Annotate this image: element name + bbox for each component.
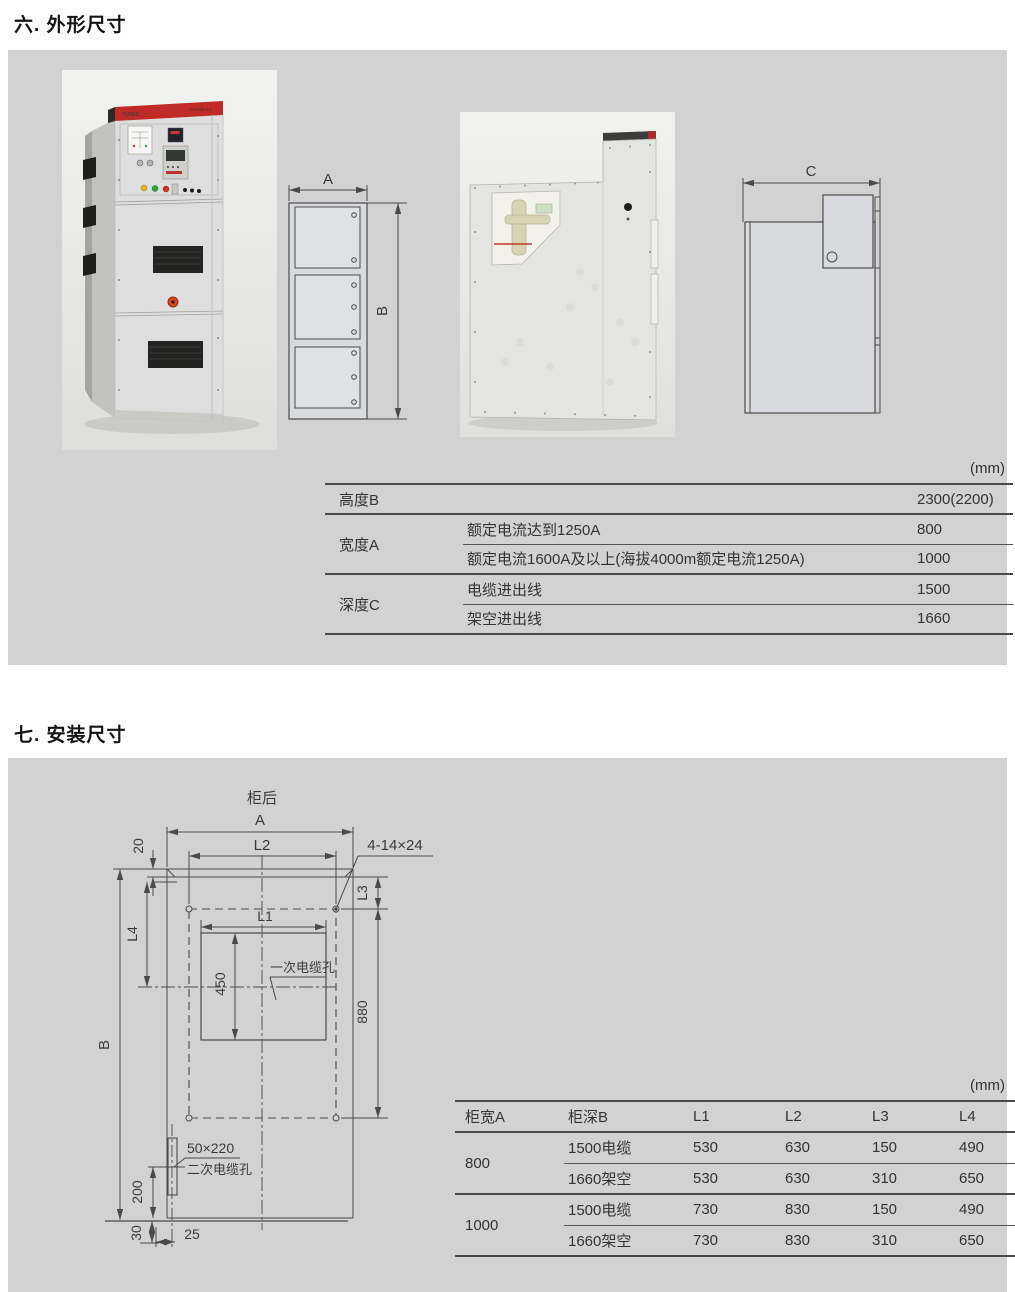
lamp-red [163, 186, 169, 192]
cell-label: 宽度A [325, 514, 463, 574]
meter-display [171, 131, 180, 134]
mimic-dot-green [145, 145, 147, 147]
holes-label: 4-14×24 [367, 837, 422, 854]
dim-label-A: A [323, 171, 333, 188]
door-panel [295, 347, 360, 408]
mounting-hole [186, 1115, 192, 1121]
push-button [183, 188, 187, 192]
mounting-hole [186, 906, 192, 912]
cell-width: 800 [455, 1132, 564, 1194]
dim-label-L1: L1 [257, 908, 273, 924]
relay-key [172, 166, 174, 168]
cell-depth: 1500电缆 [564, 1194, 687, 1225]
relay-key [167, 166, 169, 168]
cell-l2: 630 [779, 1163, 866, 1194]
round-indicator-core [171, 300, 174, 303]
table-header-row: 柜宽A 柜深B L1 L2 L3 L4 [455, 1101, 1015, 1132]
cell-spacer [463, 484, 913, 514]
installation-drawing: 柜后 A L2 20 B L4 4-14×24 L3 880 L1 450 一次… [95, 772, 440, 1287]
insulator-bar [505, 215, 550, 224]
cell-l2: 830 [779, 1194, 866, 1225]
raised-box [823, 195, 873, 268]
cell-width: 1000 [455, 1194, 564, 1256]
primary-hole-label: 一次电缆孔 [270, 960, 335, 975]
header-l4: L4 [953, 1101, 1015, 1132]
digital-meter [168, 128, 183, 142]
cell-depth: 1660架空 [564, 1163, 687, 1194]
section7-title: 七. 安装尺寸 [14, 720, 127, 747]
cell-l4: 490 [953, 1132, 1015, 1163]
cell-l3: 310 [866, 1163, 953, 1194]
cell-value: 1660 [913, 604, 1013, 634]
dim-label-A: A [255, 812, 265, 829]
dim-label-B: B [96, 1040, 113, 1050]
door-panel [295, 207, 360, 268]
dimension-table: 高度B 2300(2200) 宽度A 额定电流达到1250A 800 额定电流1… [325, 483, 1013, 635]
middle-vent [153, 246, 203, 273]
dim-label-200: 200 [129, 1180, 145, 1204]
window-component [536, 204, 552, 213]
catalog-page: 六. 外形尺寸 YUNER KYN28-12 [0, 0, 1015, 1292]
insulator-arm [512, 200, 526, 255]
cell-l1: 530 [687, 1132, 779, 1163]
cell-l4: 650 [953, 1163, 1015, 1194]
control-switch [147, 160, 153, 166]
cell-l1: 530 [687, 1163, 779, 1194]
mounting-hole [333, 1115, 339, 1121]
dim-label-L2: L2 [254, 837, 271, 854]
installation-table: 柜宽A 柜深B L1 L2 L3 L4 800 1500电缆 530 630 1… [455, 1100, 1015, 1257]
panel-hole [624, 203, 632, 211]
cell-l2: 630 [779, 1132, 866, 1163]
cell-condition: 额定电流达到1250A [463, 514, 913, 544]
side-view-drawing: C [723, 153, 913, 425]
cell-l1: 730 [687, 1225, 779, 1256]
cell-value: 2300(2200) [913, 484, 1013, 514]
cell-value: 1500 [913, 574, 1013, 604]
cell-value: 800 [913, 514, 1013, 544]
section6-title: 六. 外形尺寸 [14, 10, 127, 37]
control-switch [137, 160, 143, 166]
secondary-hole-leader [174, 1158, 185, 1167]
side-panel-photo [460, 112, 675, 437]
door-panel [295, 275, 360, 339]
table-row: 深度C 电缆进出线 1500 [325, 574, 1013, 604]
secondary-size-label: 50×220 [187, 1140, 234, 1156]
push-button [197, 189, 201, 193]
cell-value: 1000 [913, 544, 1013, 574]
relay-screen [166, 150, 185, 161]
rear-label: 柜后 [247, 790, 277, 807]
brand-text: YUNER [122, 112, 140, 118]
mimic-dot-red [133, 145, 135, 147]
dim-label-880: 880 [354, 1000, 370, 1024]
front-view-drawing: A B [283, 168, 433, 430]
side-handles [83, 157, 96, 276]
edge-tab [651, 220, 658, 268]
cell-l1: 730 [687, 1194, 779, 1225]
edge-tab [651, 274, 658, 324]
dim-label-450: 450 [212, 972, 228, 996]
dim-label-25: 25 [184, 1226, 200, 1242]
header-width: 柜宽A [455, 1101, 564, 1132]
cell-label: 高度B [325, 484, 463, 514]
cell-l3: 310 [866, 1225, 953, 1256]
primary-hole-leader [270, 977, 276, 1000]
lamp-green [152, 186, 158, 192]
dim-label-L4: L4 [124, 926, 140, 942]
model-text: KYN28-12 [190, 107, 212, 112]
table1-unit: (mm) [325, 460, 1005, 477]
table-row: 800 1500电缆 530 630 150 490 [455, 1132, 1015, 1163]
table2-unit: (mm) [455, 1077, 1005, 1094]
cell-condition: 额定电流1600A及以上(海拔4000m额定电流1250A) [463, 544, 913, 574]
table-row: 宽度A 额定电流达到1250A 800 [325, 514, 1013, 544]
table-row: 高度B 2300(2200) [325, 484, 1013, 514]
mounting-rect [189, 909, 336, 1118]
header-l3: L3 [866, 1101, 953, 1132]
mounting-hole-center [335, 908, 337, 910]
relay-strip [166, 171, 182, 174]
cell-condition: 电缆进出线 [463, 574, 913, 604]
dim-label-L3: L3 [354, 885, 370, 901]
cell-l4: 490 [953, 1194, 1015, 1225]
secondary-hole-label: 二次电缆孔 [187, 1162, 252, 1177]
key-switch [172, 184, 178, 194]
cell-label: 深度C [325, 574, 463, 634]
header-l1: L1 [687, 1101, 779, 1132]
cell-l3: 150 [866, 1132, 953, 1163]
dim-label-20: 20 [130, 838, 146, 854]
cell-depth: 1500电缆 [564, 1132, 687, 1163]
header-depth: 柜深B [564, 1101, 687, 1132]
dim-label-30: 30 [128, 1225, 144, 1241]
dim-label-C: C [806, 163, 817, 180]
bottom-vent [148, 341, 203, 368]
cell-l4: 650 [953, 1225, 1015, 1256]
panel-dot [627, 218, 630, 221]
cell-l2: 830 [779, 1225, 866, 1256]
dim-label-B: B [374, 306, 391, 316]
header-l2: L2 [779, 1101, 866, 1132]
cell-depth: 1660架空 [564, 1225, 687, 1256]
relay-key [177, 166, 179, 168]
cell-l3: 150 [866, 1194, 953, 1225]
cabinet-photo: YUNER KYN28-12 [60, 70, 280, 450]
cell-condition: 架空进出线 [463, 604, 913, 634]
lamp-yellow [141, 185, 147, 191]
table-row: 1000 1500电缆 730 830 150 490 [455, 1194, 1015, 1225]
push-button [190, 189, 194, 193]
